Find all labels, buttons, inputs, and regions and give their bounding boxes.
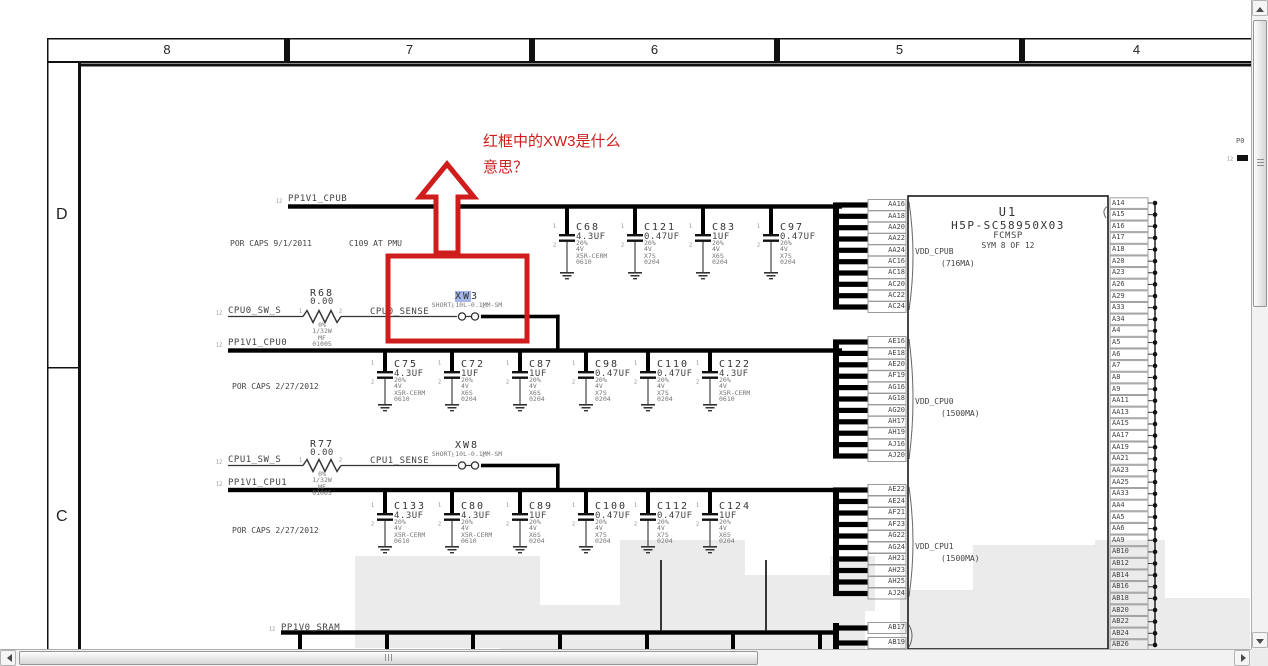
horizontal-scroll-thumb[interactable] [19,651,758,665]
scroll-down-icon [1256,639,1264,648]
red-highlight-box [388,256,527,341]
scroll-right-button[interactable] [1234,650,1250,666]
thumb-grip-icon [385,654,394,661]
scroll-up-button[interactable] [1252,0,1268,16]
scroll-right-icon [1241,654,1250,662]
schematic-viewer-window: 87654DC12PP1V1_CPUBPOR CAPS 9/1/2011C109… [0,0,1268,666]
red-arrow-icon [420,164,474,253]
scrollbar-corner [1251,649,1268,666]
red-annotation-layer [0,0,1251,649]
horizontal-scrollbar[interactable] [0,649,1251,666]
scroll-left-icon [3,654,12,662]
thumb-grip-icon [1257,159,1264,168]
annotation-line1: 红框中的XW3是什么 [483,129,621,155]
vertical-scrollbar[interactable] [1251,0,1268,649]
schematic-canvas: 87654DC12PP1V1_CPUBPOR CAPS 9/1/2011C109… [0,0,1251,649]
annotation-line2: 意思？ [483,155,621,181]
scroll-left-button[interactable] [0,650,16,666]
scroll-down-button[interactable] [1252,632,1268,648]
vertical-scroll-thumb[interactable] [1253,20,1267,307]
annotation-note: 红框中的XW3是什么 意思？ [483,129,621,181]
scroll-up-icon [1256,3,1264,12]
